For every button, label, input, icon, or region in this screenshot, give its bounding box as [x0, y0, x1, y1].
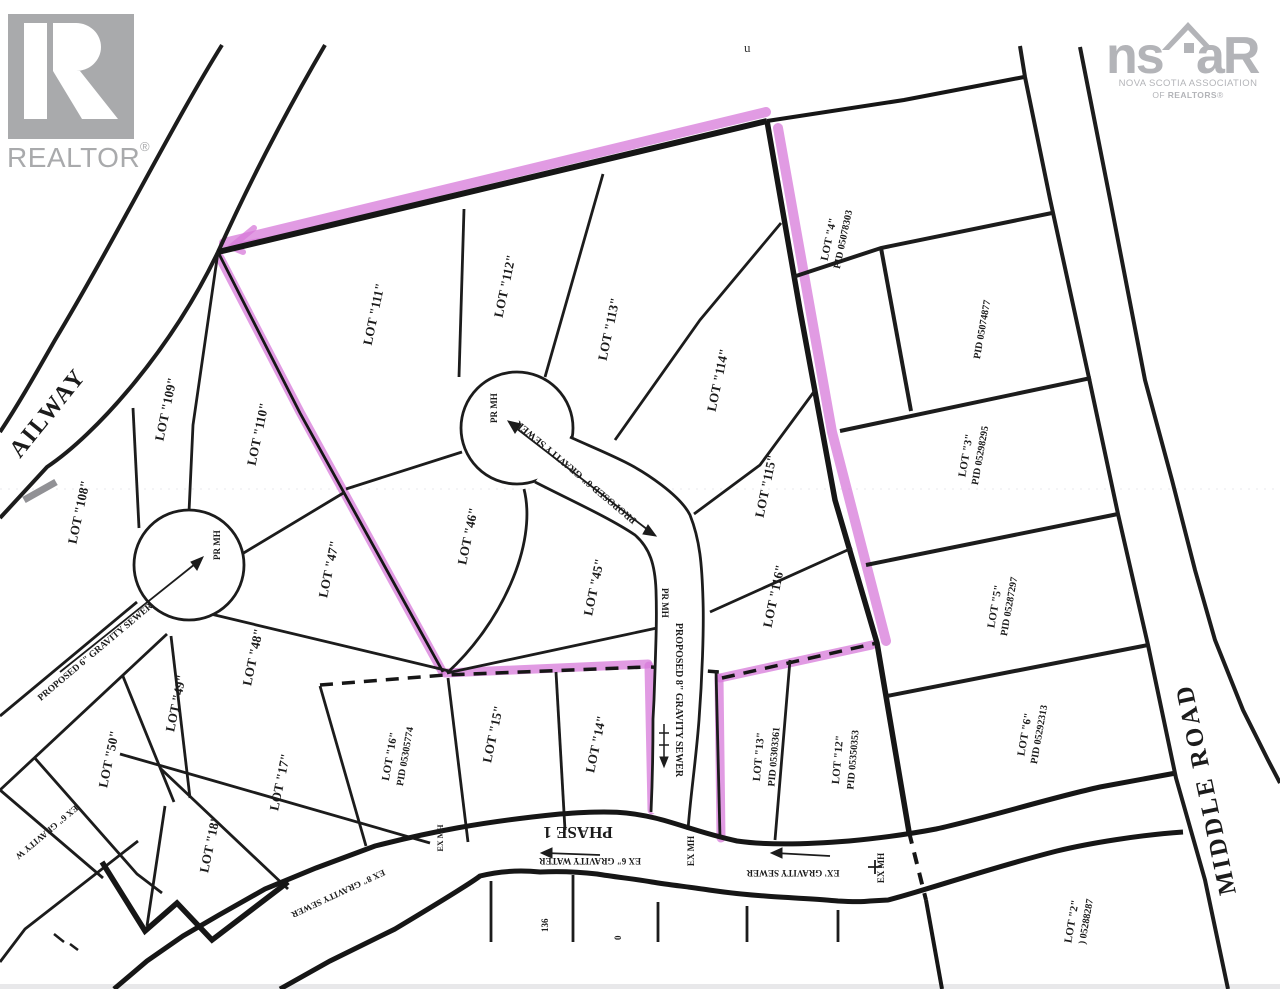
svg-text:LOT "113": LOT "113" [595, 296, 623, 361]
svg-text:0: 0 [613, 935, 623, 940]
svg-text:EX 6" GRAVITY W: EX 6" GRAVITY W [14, 803, 81, 861]
svg-text:LOT "114": LOT "114" [704, 347, 732, 412]
svg-text:LOT "18": LOT "18" [196, 814, 223, 874]
svg-text:PID 05078303: PID 05078303 [832, 209, 855, 270]
svg-text:PID 05292313: PID 05292313 [1029, 704, 1050, 765]
svg-text:EX 6" GRAVITY WATER: EX 6" GRAVITY WATER [539, 856, 641, 866]
svg-text:LOT "109": LOT "109" [152, 376, 180, 442]
svg-text:136: 136 [540, 918, 550, 932]
svg-text:MIDDLE ROAD: MIDDLE ROAD [1171, 681, 1242, 898]
svg-text:LOT "112": LOT "112" [491, 253, 519, 318]
svg-text:LOT "13": LOT "13" [751, 732, 767, 782]
svg-text:PROPOSED 8" GRAVITY SEWER: PROPOSED 8" GRAVITY SEWER [673, 623, 684, 778]
svg-text:LOT "47": LOT "47" [315, 539, 342, 599]
svg-text:AILWAY: AILWAY [4, 364, 91, 463]
svg-text:EX MH: EX MH [436, 824, 445, 852]
svg-text:PID 05287297: PID 05287297 [999, 576, 1020, 637]
svg-text:PROPOSED 6" GRAVITY SEWER: PROPOSED 6" GRAVITY SEWER [513, 418, 639, 526]
svg-text:PR MH: PR MH [489, 393, 499, 423]
svg-text:PID 05303361: PID 05303361 [766, 727, 782, 787]
svg-text:PHASE 1: PHASE 1 [543, 823, 612, 842]
svg-text:LOT "17": LOT "17" [266, 752, 293, 812]
svg-text:LOT "14": LOT "14" [582, 714, 609, 774]
svg-text:LOT "110": LOT "110" [244, 401, 272, 466]
svg-text:LOT "15": LOT "15" [479, 704, 506, 764]
svg-text:EX 8" GRAVITY SEWER: EX 8" GRAVITY SEWER [289, 868, 386, 920]
svg-text:LOT "12": LOT "12" [830, 735, 846, 785]
svg-text:LOT "111": LOT "111" [360, 282, 388, 347]
svg-text:PID 05074877: PID 05074877 [972, 299, 993, 360]
svg-text:PID 05350353: PID 05350353 [845, 730, 861, 790]
svg-text:PR MH: PR MH [660, 588, 670, 618]
svg-text:EX MH: EX MH [686, 836, 696, 866]
svg-text:EX' GRAVITY SEWER: EX' GRAVITY SEWER [746, 868, 840, 878]
svg-text:EX MH: EX MH [876, 853, 886, 883]
svg-text:PID 05298295: PID 05298295 [970, 425, 991, 486]
svg-text:LOT "49": LOT "49" [162, 673, 189, 733]
svg-text:LOT "108": LOT "108" [65, 479, 93, 545]
svg-text:LOT "45": LOT "45" [580, 557, 607, 617]
svg-text:LOT "46": LOT "46" [454, 506, 481, 566]
svg-text:LOT "116": LOT "116" [760, 563, 788, 628]
svg-text:LOT "48": LOT "48" [239, 627, 266, 687]
svg-text:LOT "115": LOT "115" [752, 453, 780, 518]
svg-text:PR MH: PR MH [212, 530, 222, 560]
svg-text:LOT "50": LOT "50" [95, 729, 122, 789]
svg-text:PROPOSED 6" GRAVITY SEWER: PROPOSED 6" GRAVITY SEWER [36, 601, 155, 703]
